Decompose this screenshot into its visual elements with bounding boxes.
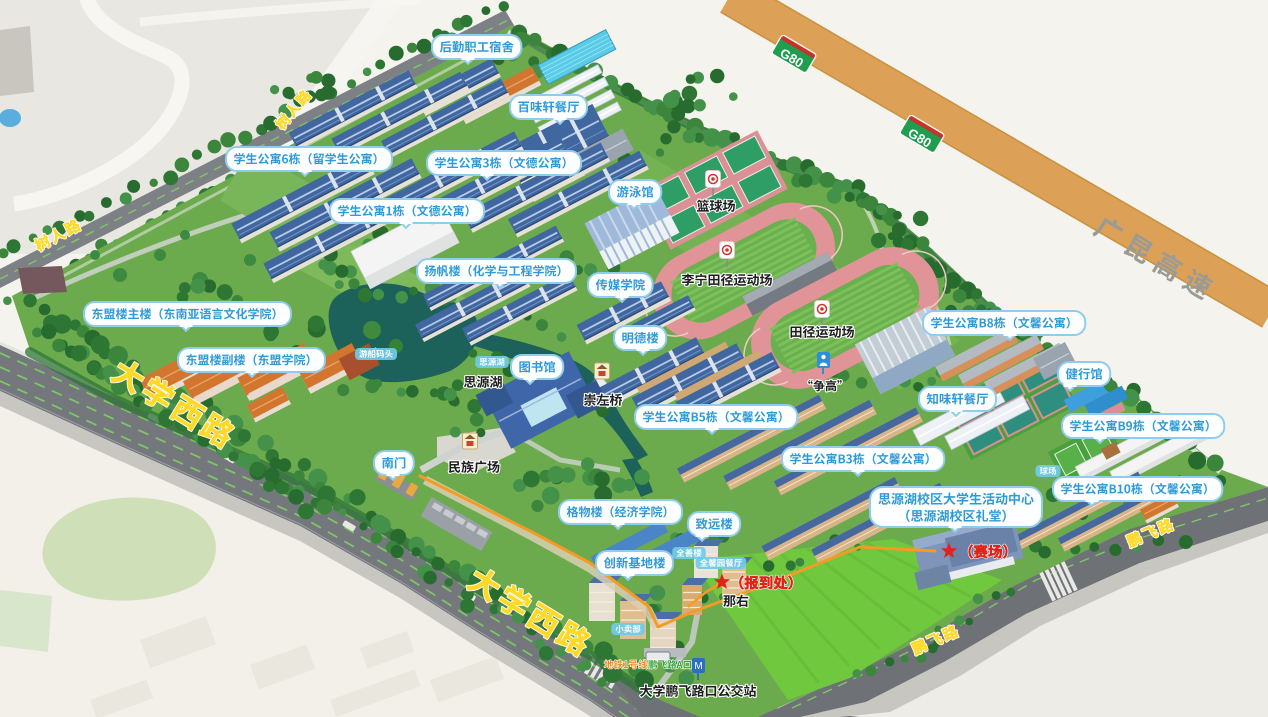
svg-text:M: M (694, 661, 702, 672)
